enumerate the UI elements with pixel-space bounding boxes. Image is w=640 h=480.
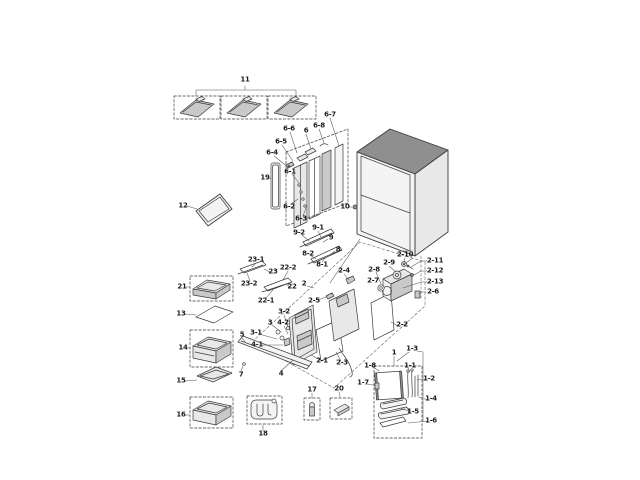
part-label-9-2: 9-2 xyxy=(293,230,305,237)
part-label-1-4: 1-4 xyxy=(425,396,437,403)
part-label-23-2: 23-2 xyxy=(241,281,257,288)
part-label-1-7: 1-7 xyxy=(357,380,369,387)
part-label-11: 11 xyxy=(240,77,249,84)
part-label-13: 13 xyxy=(176,311,185,318)
part-label-5: 5 xyxy=(240,332,245,339)
part-label-20: 20 xyxy=(334,386,343,393)
part-label-6: 6 xyxy=(304,128,309,135)
part-label-2-13: 2-13 xyxy=(427,279,443,286)
part-label-18: 18 xyxy=(258,431,267,438)
part-label-8: 8 xyxy=(336,247,341,254)
part-label-1-1: 1-1 xyxy=(404,363,416,370)
cabinet xyxy=(353,129,448,256)
shelf-tray xyxy=(274,97,308,118)
part-label-17: 17 xyxy=(307,387,316,394)
glass-shelf-12 xyxy=(196,194,232,226)
part-label-6-8: 6-8 xyxy=(313,123,325,130)
part-label-10: 10 xyxy=(340,204,349,211)
part-label-2-4: 2-4 xyxy=(338,268,350,275)
clip-2-5 xyxy=(326,293,334,299)
part-label-1-2: 1-2 xyxy=(423,376,435,383)
part-label-8-1: 8-1 xyxy=(316,262,328,269)
part-label-1-8: 1-8 xyxy=(364,363,376,370)
drawer-14 xyxy=(190,330,233,367)
part-label-6-2: 6-2 xyxy=(283,204,295,211)
part-label-2-10: 2-10 xyxy=(397,252,413,259)
shelf-tray xyxy=(180,97,214,118)
part-label-16: 16 xyxy=(176,412,185,419)
part-label-2-9: 2-9 xyxy=(383,260,395,267)
part-label-2-1: 2-1 xyxy=(316,358,328,365)
damper-20 xyxy=(330,398,352,419)
tray-15 xyxy=(197,367,232,382)
wire-shelf-13 xyxy=(196,306,233,323)
screw-10 xyxy=(353,205,357,209)
part-label-2-3: 2-3 xyxy=(336,360,348,367)
drawer-16 xyxy=(190,397,233,428)
part-label-23-1: 23-1 xyxy=(248,257,264,264)
part-label-14: 14 xyxy=(178,345,187,352)
part-label-15: 15 xyxy=(176,378,185,385)
part-label-3-1: 3-1 xyxy=(250,330,262,337)
part-label-4-1: 4-1 xyxy=(251,342,263,349)
part-label-6-5: 6-5 xyxy=(275,139,287,146)
part-2-6 xyxy=(415,291,420,298)
trim-strip-19 xyxy=(271,163,280,209)
part-label-8-2: 8-2 xyxy=(302,251,314,258)
parts-diagram: 116-76-866-66-56-4196-16-26-312109-29-19… xyxy=(0,0,640,480)
part-label-2-2: 2-2 xyxy=(396,322,408,329)
part-label-3: 3 xyxy=(268,320,273,327)
part-label-2-5: 2-5 xyxy=(308,298,320,305)
part-label-4: 4 xyxy=(279,371,284,378)
part-label-1: 1 xyxy=(392,350,397,357)
part-label-6-1: 6-1 xyxy=(284,169,296,176)
part-label-1-5: 1-5 xyxy=(407,409,419,416)
diagram-artwork xyxy=(0,0,640,480)
part-label-2-7: 2-7 xyxy=(367,278,379,285)
upper-shelves-group xyxy=(174,96,316,119)
part-label-1-6: 1-6 xyxy=(425,418,437,425)
part-label-6-6: 6-6 xyxy=(283,126,295,133)
part-label-9: 9 xyxy=(329,235,334,242)
part-label-4-2: 4-2 xyxy=(277,320,289,327)
part-label-22-2: 22-2 xyxy=(280,265,296,272)
part-label-2-12: 2-12 xyxy=(427,268,443,275)
water-tank-18 xyxy=(247,396,282,424)
part-label-6-4: 6-4 xyxy=(266,150,278,157)
clip-1-7 xyxy=(375,383,379,389)
part-label-7: 7 xyxy=(239,372,244,379)
part-label-2-8: 2-8 xyxy=(368,267,380,274)
part-label-3-2: 3-2 xyxy=(278,309,290,316)
part-label-9-1: 9-1 xyxy=(312,225,324,232)
part-label-6-3: 6-3 xyxy=(295,216,307,223)
part-label-19: 19 xyxy=(260,175,269,182)
part-label-22: 22 xyxy=(287,284,296,291)
part-label-12: 12 xyxy=(178,203,187,210)
part-label-2-11: 2-11 xyxy=(427,258,443,265)
part-label-1-3: 1-3 xyxy=(406,346,418,353)
part-label-2-6: 2-6 xyxy=(427,289,439,296)
filter-17 xyxy=(304,398,320,420)
part-label-2: 2 xyxy=(302,281,307,288)
bracket-2-4 xyxy=(346,276,355,284)
machine-compartment xyxy=(374,366,422,438)
tubes-1-1 xyxy=(407,369,418,398)
fan-motor-2-9 xyxy=(393,271,401,279)
part-label-22-1: 22-1 xyxy=(258,298,274,305)
air-duct xyxy=(329,289,359,341)
pantry-drawer-21 xyxy=(190,276,233,301)
part-label-6-7: 6-7 xyxy=(324,112,336,119)
washer-2-8 xyxy=(378,285,384,291)
part-label-23: 23 xyxy=(268,269,277,276)
shelf-tray xyxy=(227,97,261,118)
part-label-21: 21 xyxy=(177,284,186,291)
